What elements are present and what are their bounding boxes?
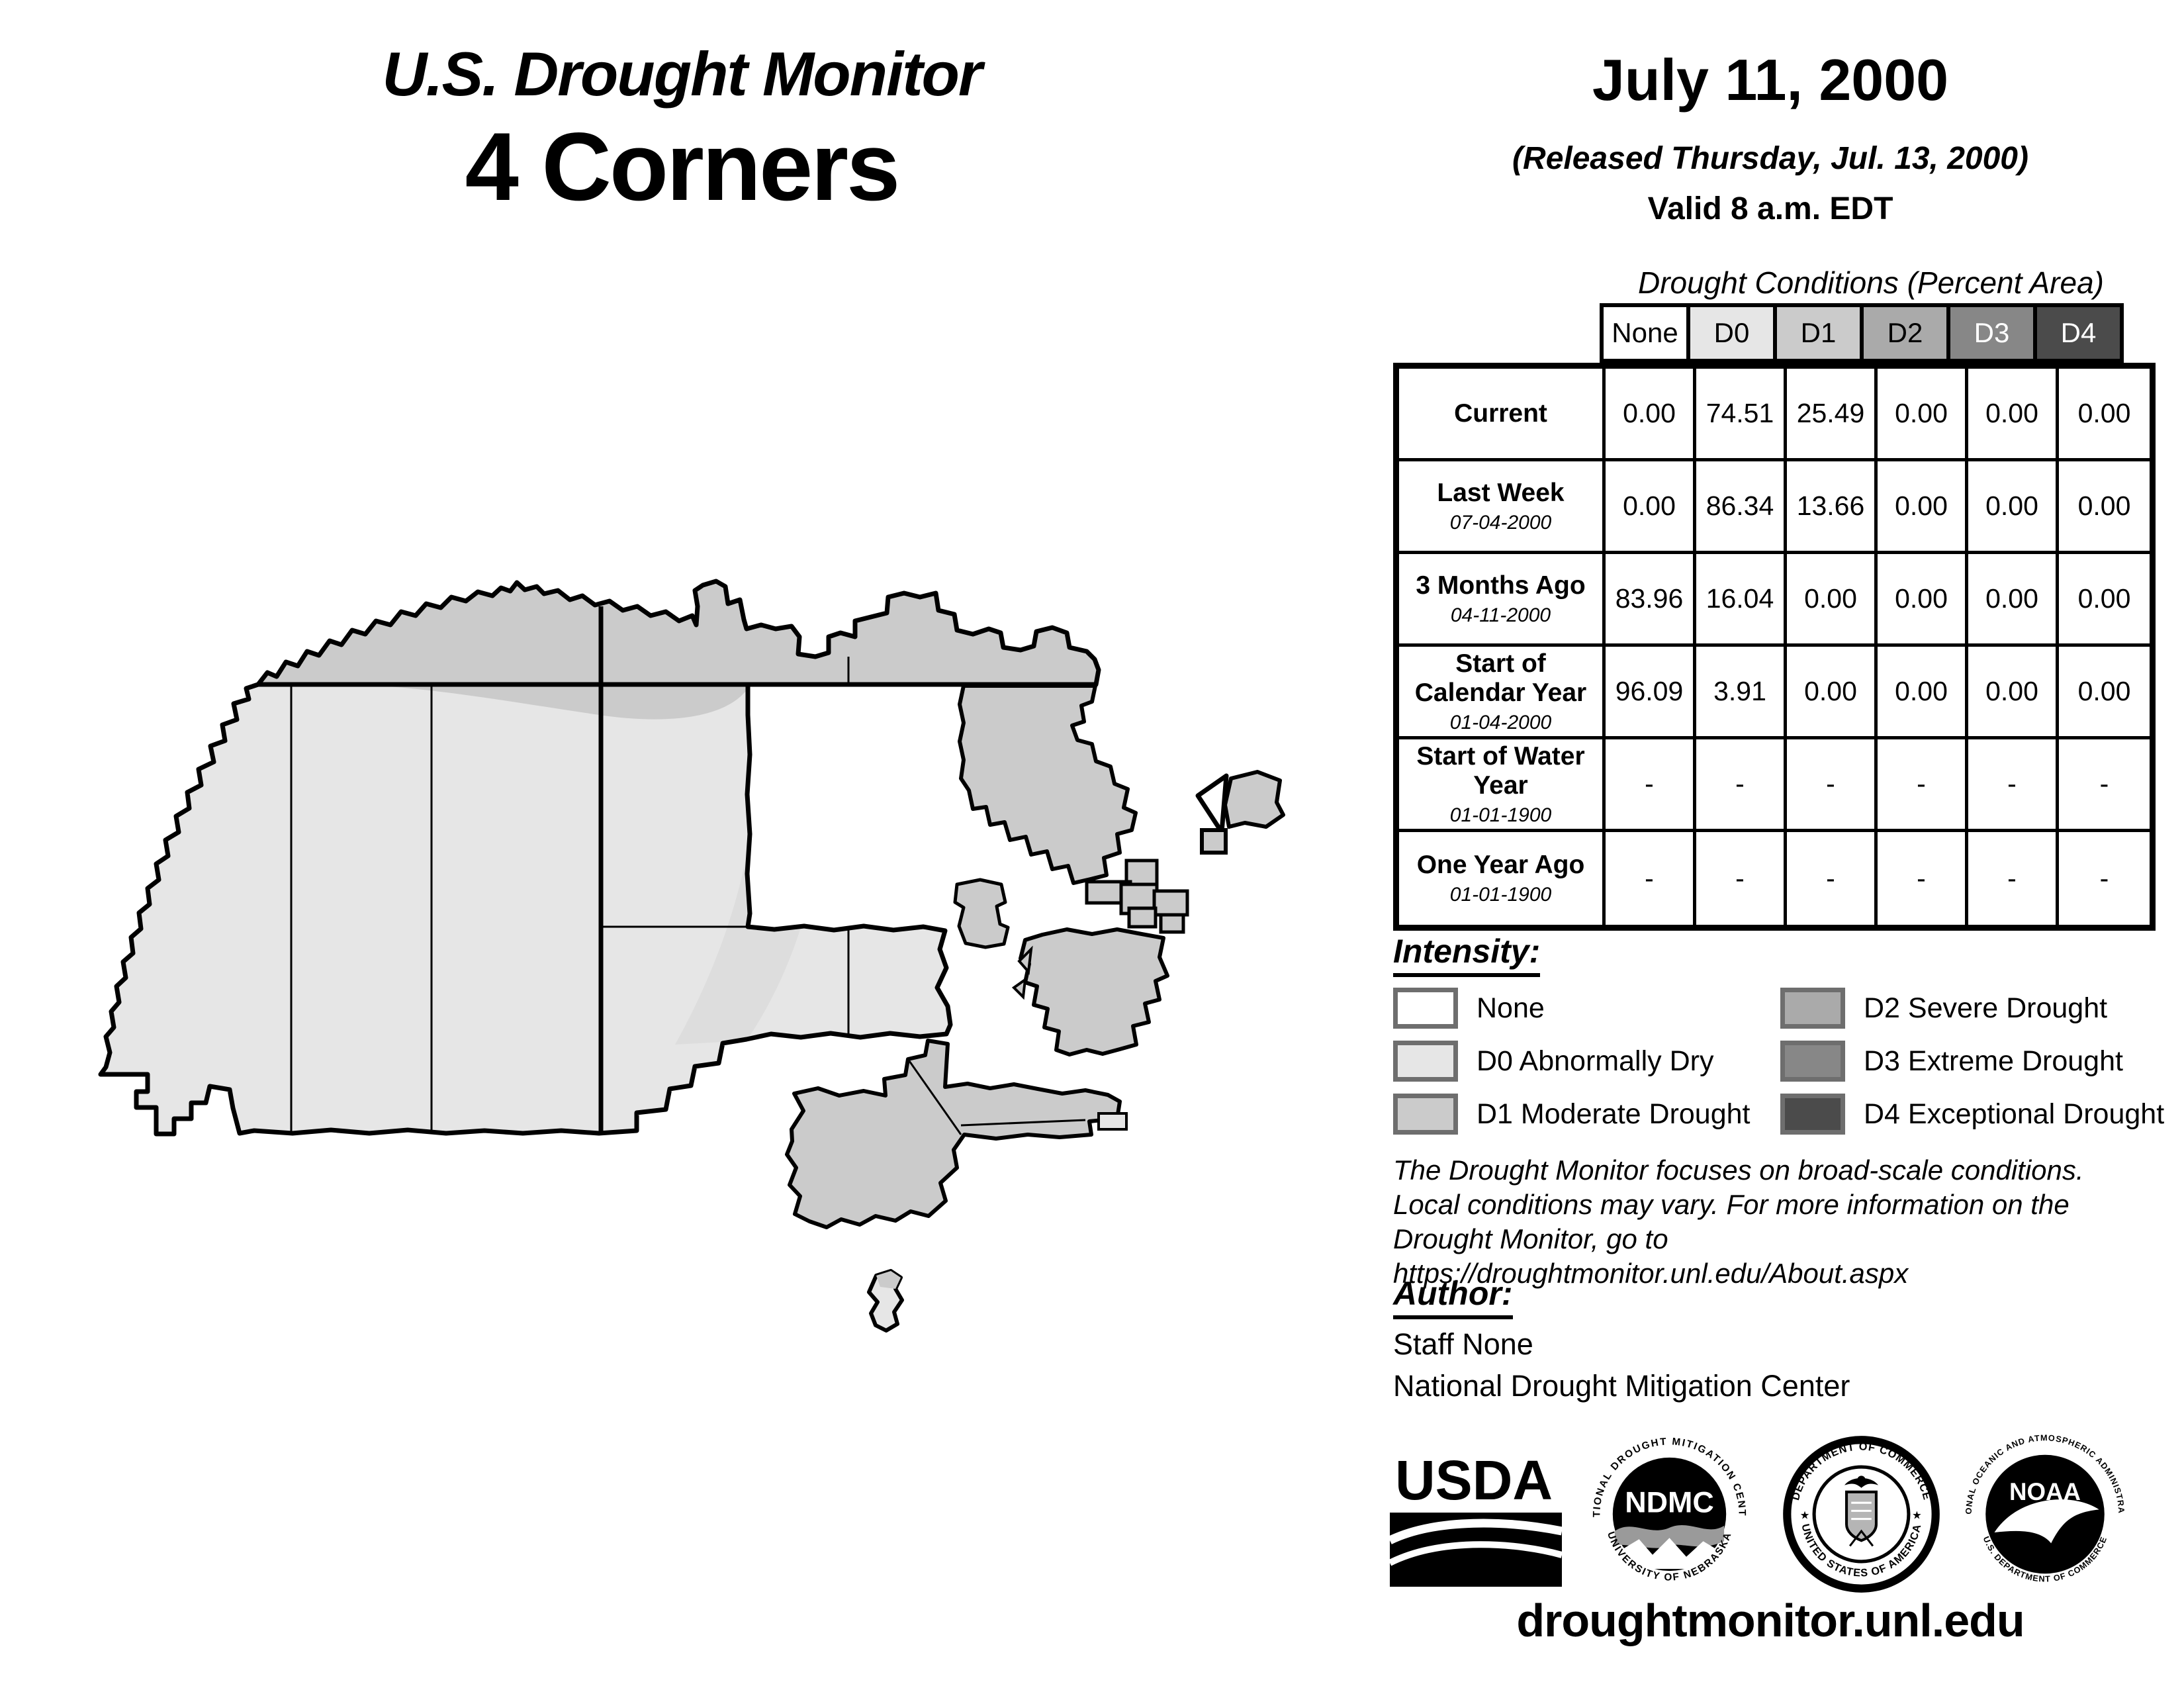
table-cell: - xyxy=(1968,832,2059,925)
table-cell: - xyxy=(1696,739,1787,832)
map-d1-sliver-2 xyxy=(1014,980,1025,997)
legend-item-d3: D3 Extreme Drought xyxy=(1780,1041,2123,1082)
legend-item-d2: D2 Severe Drought xyxy=(1780,988,2107,1029)
page-title: U.S. Drought Monitor xyxy=(0,38,1363,110)
table-cell: 0.00 xyxy=(1606,369,1696,461)
table-cell: 0.00 xyxy=(1968,554,2059,647)
column-header-d4: D4 xyxy=(2033,303,2124,363)
table-cell: 0.00 xyxy=(1878,461,1968,554)
table-cell: - xyxy=(2059,832,2150,925)
column-header-d3: D3 xyxy=(1946,303,2037,363)
legend-swatch-d4 xyxy=(1780,1094,1845,1135)
table-cell: 74.51 xyxy=(1696,369,1787,461)
drought-monitor-report: U.S. Drought Monitor 4 Corners July 11, … xyxy=(0,0,2184,1688)
table-cell: 83.96 xyxy=(1606,554,1696,647)
table-cell: 0.00 xyxy=(1787,647,1878,739)
legend-swatch-d2 xyxy=(1780,988,1845,1029)
legend-swatch-d0 xyxy=(1393,1041,1458,1082)
author-name: Staff None xyxy=(1393,1327,1533,1362)
legend-swatch-none xyxy=(1393,988,1458,1029)
table-header-row: None D0 D1 D2 D3 D4 xyxy=(1600,303,2124,363)
legend-title: Intensity: xyxy=(1393,932,1540,977)
table-row-label: Start of Water Year01-01-1900 xyxy=(1399,739,1606,832)
table-cell: - xyxy=(1606,739,1696,832)
table-cell: 13.66 xyxy=(1787,461,1878,554)
author-organization: National Drought Mitigation Center xyxy=(1393,1369,1850,1403)
commerce-star-right: ★ xyxy=(1912,1510,1922,1522)
legend-item-d4: D4 Exceptional Drought xyxy=(1780,1094,2164,1135)
usda-logo-text: USDA xyxy=(1395,1449,1553,1511)
table-row-label: One Year Ago01-01-1900 xyxy=(1399,832,1606,925)
ndmc-logo: NATIONAL DROUGHT MITIGATION CENTER UNIVE… xyxy=(1585,1430,1754,1599)
table-cell: 0.00 xyxy=(1878,369,1968,461)
column-header-d2: D2 xyxy=(1860,303,1950,363)
noaa-logo-text: NOAA xyxy=(2009,1478,2081,1505)
table-cell: - xyxy=(1696,832,1787,925)
table-cell: - xyxy=(1878,739,1968,832)
usda-logo: USDA xyxy=(1390,1446,1562,1589)
column-header-none: None xyxy=(1600,303,1690,363)
released-date: (Released Thursday, Jul. 13, 2000) xyxy=(1357,140,2184,177)
ndmc-logo-text: NDMC xyxy=(1625,1485,1714,1519)
table-cell: 0.00 xyxy=(1968,369,2059,461)
table-cell: 0.00 xyxy=(2059,647,2150,739)
table-row-label: Last Week07-04-2000 xyxy=(1399,461,1606,554)
table-row-label: Current xyxy=(1399,369,1606,461)
table-cell: 25.49 xyxy=(1787,369,1878,461)
map-d1-bottom-cluster xyxy=(787,1041,1120,1227)
table-cell: 0.00 xyxy=(1968,461,2059,554)
table-cell: 16.04 xyxy=(1696,554,1787,647)
column-header-d1: D1 xyxy=(1773,303,1864,363)
legend-swatch-d1 xyxy=(1393,1094,1458,1135)
table-cell: - xyxy=(2059,739,2150,832)
table-cell: - xyxy=(1606,832,1696,925)
map-d1-hook-island xyxy=(955,880,1008,947)
map-d0-tail xyxy=(1099,1113,1126,1129)
table-cell: 0.00 xyxy=(1878,554,1968,647)
map-d1-southeast-blob xyxy=(1021,929,1167,1055)
table-cell: 0.00 xyxy=(2059,369,2150,461)
table-cell: 0.00 xyxy=(2059,461,2150,554)
table-cell: - xyxy=(1968,739,2059,832)
table-cell: - xyxy=(1878,832,1968,925)
table-row-label: 3 Months Ago04-11-2000 xyxy=(1399,554,1606,647)
report-date: July 11, 2000 xyxy=(1357,46,2184,114)
valid-time: Valid 8 a.m. EDT xyxy=(1357,191,2184,227)
map-island-triangle xyxy=(1198,776,1226,832)
legend-swatch-d3 xyxy=(1780,1041,1845,1082)
website-url: droughtmonitor.unl.edu xyxy=(1357,1594,2184,1647)
disclaimer-line-2: Local conditions may vary. For more info… xyxy=(1393,1188,2184,1222)
table-cell: 0.00 xyxy=(1968,647,2059,739)
map-island-round-blob xyxy=(1225,772,1283,827)
table-cell: 0.00 xyxy=(1787,554,1878,647)
drought-conditions-table: Current 0.00 74.51 25.49 0.00 0.00 0.00 … xyxy=(1393,363,2156,931)
table-cell: 86.34 xyxy=(1696,461,1787,554)
disclaimer-line-1: The Drought Monitor focuses on broad-sca… xyxy=(1393,1153,2184,1188)
map-d1-northeast-arm xyxy=(960,686,1136,883)
column-header-d0: D0 xyxy=(1686,303,1777,363)
table-cell: 96.09 xyxy=(1606,647,1696,739)
commerce-seal: DEPARTMENT OF COMMERCE UNITED STATES OF … xyxy=(1777,1430,1946,1599)
legend-item-d0: D0 Abnormally Dry xyxy=(1393,1041,1713,1082)
table-cell: - xyxy=(1787,832,1878,925)
region-title: 4 Corners xyxy=(0,111,1363,222)
table-cell: 3.91 xyxy=(1696,647,1787,739)
legend-item-none: None xyxy=(1393,988,1545,1029)
author-heading: Author: xyxy=(1393,1274,1513,1319)
commerce-star-left: ★ xyxy=(1800,1510,1810,1522)
table-row-label: Start of Calendar Year01-04-2000 xyxy=(1399,647,1606,739)
table-cell: - xyxy=(1787,739,1878,832)
noaa-logo: NOAA NATIONAL OCEANIC AND ATMOSPHERIC AD… xyxy=(1959,1430,2131,1599)
table-cell: 0.00 xyxy=(1878,647,1968,739)
table-title: Drought Conditions (Percent Area) xyxy=(1600,265,2142,301)
table-cell: 0.00 xyxy=(1606,461,1696,554)
map-island-small-square xyxy=(1202,830,1226,853)
table-cell: 0.00 xyxy=(2059,554,2150,647)
legend-item-d1: D1 Moderate Drought xyxy=(1393,1094,1751,1135)
